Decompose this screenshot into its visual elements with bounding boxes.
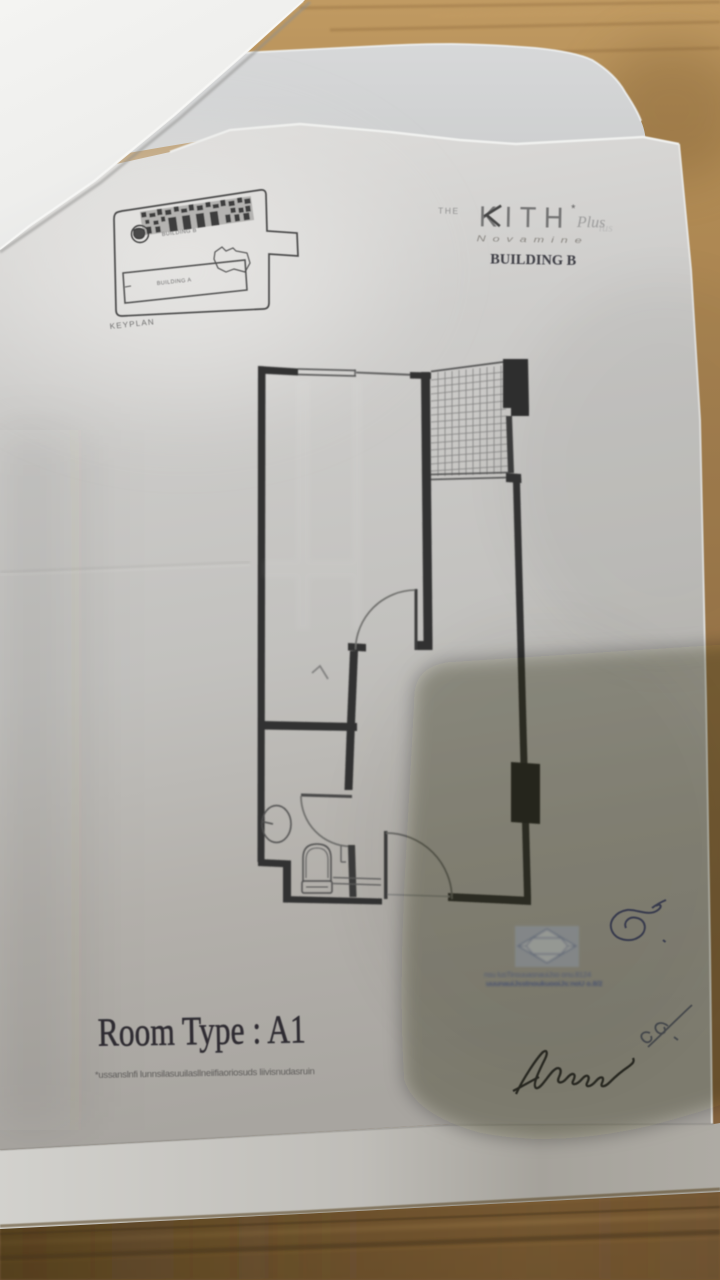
svg-text:KITH: KITH — [479, 201, 572, 235]
svg-text:THE: THE — [438, 206, 460, 216]
svg-text:BUILDING B: BUILDING B — [490, 251, 576, 268]
svg-text:Novamine: Novamine — [477, 233, 589, 245]
svg-text:Room Type : A1: Room Type : A1 — [97, 1006, 306, 1055]
svg-text:lus: lus — [599, 220, 614, 234]
